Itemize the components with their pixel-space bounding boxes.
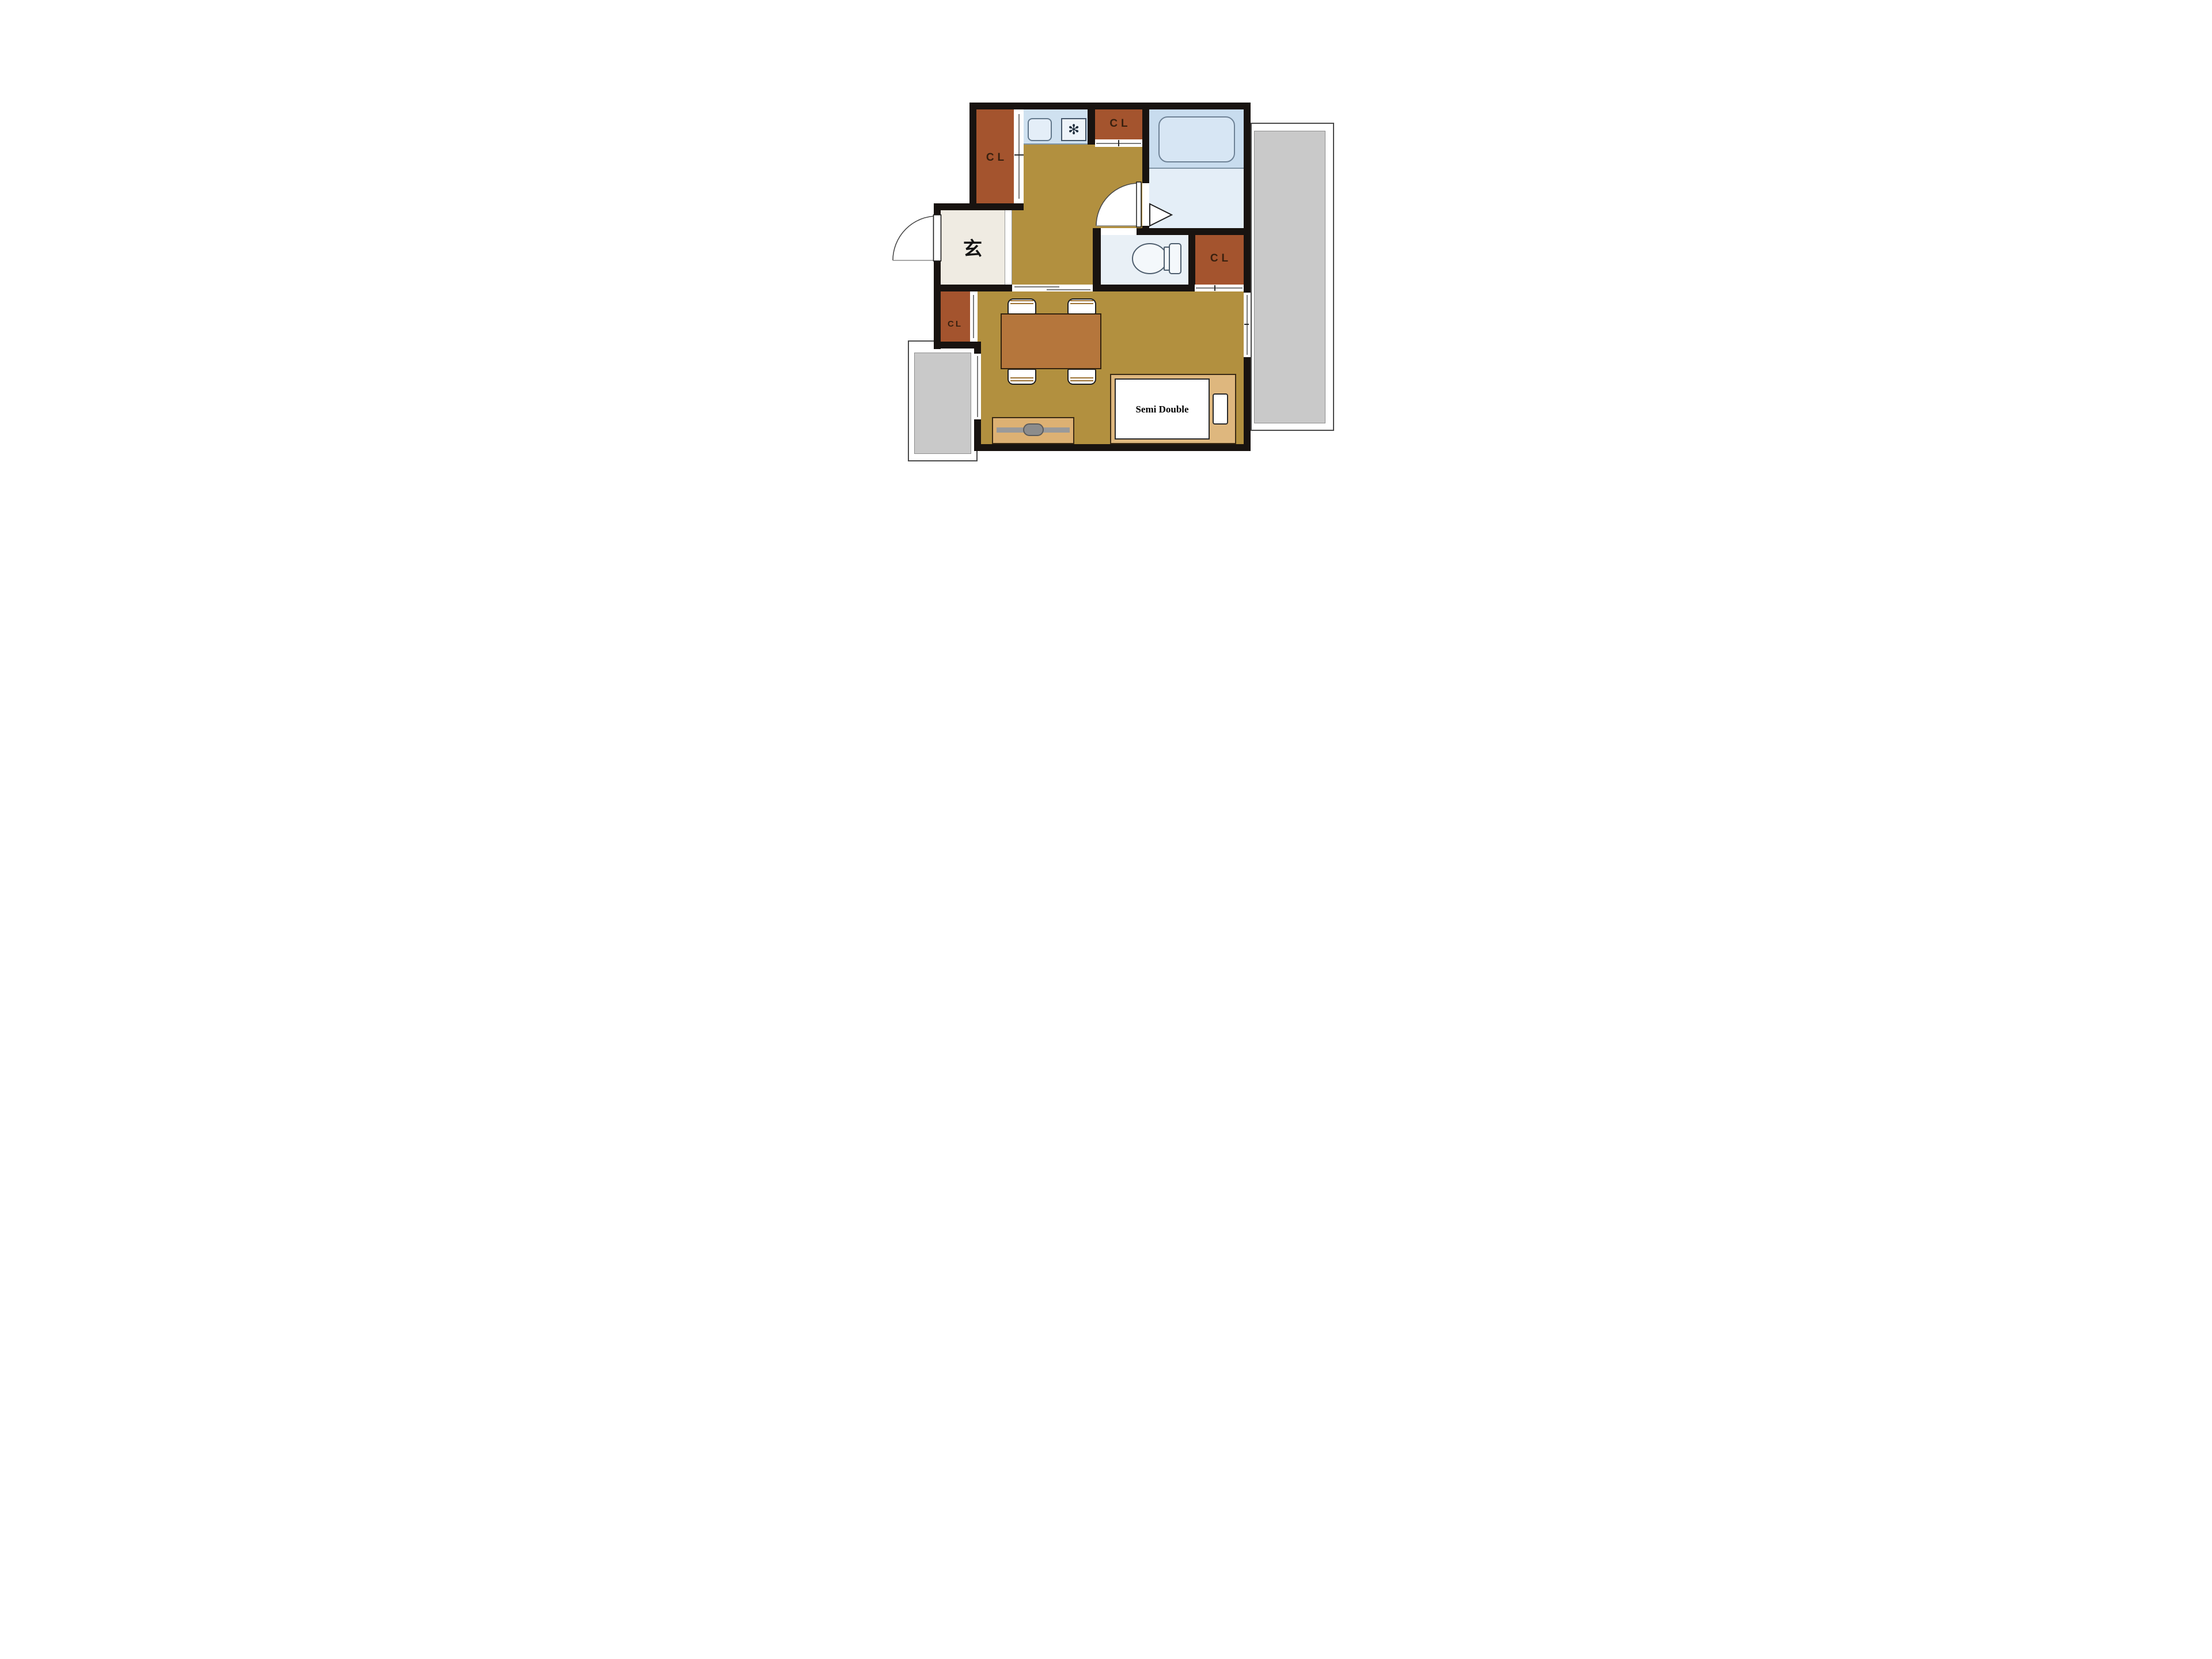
chair-slats — [1070, 300, 1093, 306]
closet-top-left-label: CL — [976, 150, 1014, 166]
balcony-bottom-left-floor — [914, 353, 971, 454]
dining-chair — [1067, 369, 1096, 385]
wall-segment — [969, 103, 976, 210]
balcony-right-floor — [1254, 131, 1325, 423]
dining-chair — [1067, 298, 1096, 315]
window-mark — [977, 356, 978, 417]
sliding-tick — [1118, 140, 1119, 146]
dining-table — [1001, 313, 1101, 369]
bathroom-washroom — [1149, 169, 1244, 228]
wall-segment — [1244, 103, 1251, 451]
wall-segment — [1088, 109, 1095, 145]
sliding-tick — [1014, 154, 1024, 156]
wall-segment — [934, 285, 1012, 291]
sliding-tick — [1214, 285, 1215, 291]
tv-screen — [1023, 423, 1044, 436]
closet-top-middle-label: CL — [1095, 115, 1142, 132]
chair-slats — [1070, 377, 1093, 383]
entrance-door-opening — [934, 215, 941, 260]
wall-segment — [1093, 285, 1195, 291]
bed-size-label: Semi Double — [1115, 402, 1210, 417]
sliding-mark — [1018, 114, 1020, 199]
sliding-mark — [973, 295, 974, 338]
bed-pillow — [1213, 393, 1228, 425]
sliding-mark — [1014, 286, 1059, 287]
sliding-mark — [1196, 287, 1243, 289]
wall-segment — [934, 342, 981, 349]
wall-segment — [934, 203, 1024, 210]
chair-slats — [1010, 377, 1033, 383]
toilet-door-opening — [1101, 228, 1137, 235]
kitchen-sink — [1028, 118, 1052, 141]
floor-plan: ✻ — [737, 0, 1475, 553]
bathroom-divider-line — [1149, 168, 1244, 169]
wall-segment — [974, 444, 1251, 451]
sliding-mark — [1047, 289, 1090, 290]
bathroom-door-opening — [1142, 183, 1149, 226]
entrance-label: 玄 — [941, 233, 1005, 261]
wall-segment — [1142, 228, 1244, 235]
toilet-room — [1101, 235, 1188, 285]
window-mark — [1247, 295, 1248, 355]
window-tick — [1244, 324, 1249, 325]
wall-segment — [1093, 235, 1101, 287]
closet-side-label: CL — [1195, 250, 1244, 267]
closet-entry-label: CL — [938, 317, 970, 331]
chair-slats — [1010, 300, 1033, 306]
bathtub — [1158, 116, 1235, 162]
wall-segment — [969, 103, 1251, 109]
hall-living-opening — [1012, 285, 1093, 291]
burner-icon: ✻ — [1068, 122, 1080, 138]
dining-chair — [1007, 369, 1036, 385]
dining-chair — [1007, 298, 1036, 315]
hallway-floor-side — [1012, 210, 1024, 285]
entrance-step-strip — [1005, 210, 1012, 285]
stove-burner: ✻ — [1061, 118, 1086, 141]
